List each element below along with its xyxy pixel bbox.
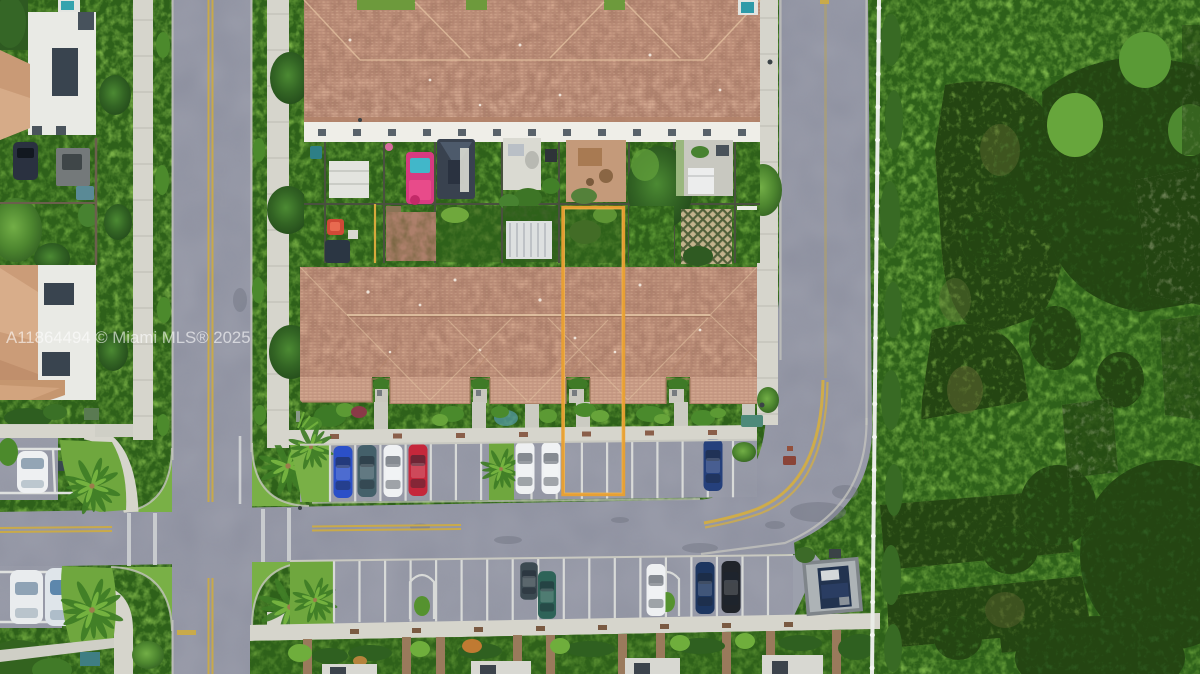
svg-text:A11864494 © Miami MLS® 2025: A11864494 © Miami MLS® 2025 (6, 328, 251, 347)
